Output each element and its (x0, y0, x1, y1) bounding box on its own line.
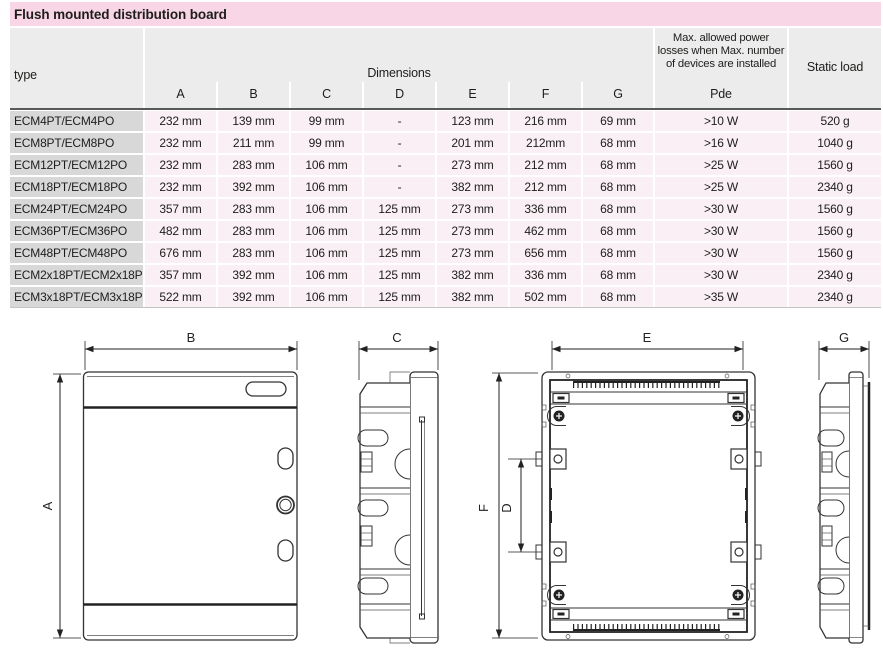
cell-dim-c: 106 mm (291, 243, 362, 263)
cell-dim-g: 68 mm (583, 133, 653, 153)
col-header-type: type (14, 68, 37, 82)
fixing-hole (731, 542, 761, 562)
cell-dim-f: 216 mm (510, 111, 581, 131)
cell-dim-d: - (364, 177, 435, 197)
cell-type: ECM3x18PT/ECM3x18PO (10, 287, 143, 307)
col-header-power-losses: Max. allowed power losses when Max. numb… (655, 32, 787, 71)
cell-dim-c: 106 mm (291, 221, 362, 241)
cell-dim-c: 106 mm (291, 199, 362, 219)
cell-dim-e: 201 mm (437, 133, 508, 153)
dim-f-label: F (476, 504, 491, 512)
cell-static: 520 g (789, 111, 881, 131)
box-profile (360, 383, 410, 638)
hinge-slot-top (278, 448, 293, 469)
box-profile (820, 383, 849, 638)
table-body: ECM4PT/ECM4PO 232 mm 139 mm 99 mm - 123 … (10, 111, 881, 307)
cell-dim-g: 68 mm (583, 177, 653, 197)
cell-dim-f: 212 mm (510, 177, 581, 197)
cell-dim-b: 392 mm (218, 177, 289, 197)
col-header-dim-d: D (364, 87, 435, 101)
cell-dim-b: 283 mm (218, 199, 289, 219)
col-header-dim-g: G (583, 87, 653, 101)
dim-c-label: C (392, 330, 401, 345)
cell-dim-c: 106 mm (291, 177, 362, 197)
cell-static: 2340 g (789, 287, 881, 307)
cell-dim-e: 382 mm (437, 177, 508, 197)
cell-pde: >30 W (655, 221, 787, 241)
cell-dim-g: 69 mm (583, 111, 653, 131)
col-header-static-load: Static load (789, 60, 881, 74)
side-view-c-drawing: C (330, 328, 455, 650)
cell-dim-f: 462 mm (510, 221, 581, 241)
cell-dim-e: 382 mm (437, 265, 508, 285)
cell-type: ECM24PT/ECM24PO (10, 199, 143, 219)
cell-dim-g: 68 mm (583, 287, 653, 307)
cell-dim-g: 68 mm (583, 155, 653, 175)
cell-dim-b: 283 mm (218, 155, 289, 175)
cell-dim-e: 273 mm (437, 155, 508, 175)
cell-dim-f: 212mm (510, 133, 581, 153)
cell-pde: >16 W (655, 133, 787, 153)
cell-dim-e: 123 mm (437, 111, 508, 131)
cell-type: ECM48PT/ECM48PO (10, 243, 143, 263)
enclosure-outline (542, 372, 755, 640)
cell-dim-a: 232 mm (145, 177, 216, 197)
cell-dim-f: 212 mm (510, 155, 581, 175)
cell-dim-g: 68 mm (583, 221, 653, 241)
cell-dim-d: - (364, 111, 435, 131)
col-header-dim-e: E (437, 87, 508, 101)
cell-dim-b: 392 mm (218, 265, 289, 285)
col-header-dim-c: C (291, 87, 362, 101)
fixing-hole (731, 449, 761, 469)
cell-type: ECM4PT/ECM4PO (10, 111, 143, 131)
cell-type: ECM8PT/ECM8PO (10, 133, 143, 153)
side-view-g-drawing: G (805, 328, 883, 650)
cell-dim-d: 125 mm (364, 287, 435, 307)
hinge-slot-bottom (278, 540, 293, 561)
cell-dim-d: - (364, 155, 435, 175)
cell-dim-a: 232 mm (145, 111, 216, 131)
cell-dim-d: 125 mm (364, 243, 435, 263)
cell-dim-g: 68 mm (583, 199, 653, 219)
cell-dim-c: 106 mm (291, 287, 362, 307)
cell-dim-e: 382 mm (437, 287, 508, 307)
rear-view-drawing: E F D (480, 328, 775, 650)
dim-g-label: G (839, 330, 849, 345)
handle-slot (246, 382, 286, 396)
cell-type: ECM18PT/ECM18PO (10, 177, 143, 197)
cell-static: 1560 g (789, 243, 881, 263)
cell-pde: >30 W (655, 199, 787, 219)
cell-static: 2340 g (789, 177, 881, 197)
dim-e-label: E (643, 330, 652, 345)
cell-dim-a: 357 mm (145, 265, 216, 285)
cell-dim-b: 283 mm (218, 221, 289, 241)
cell-pde: >10 W (655, 111, 787, 131)
cell-dim-e: 273 mm (437, 221, 508, 241)
enclosure-outline (84, 372, 298, 640)
cell-pde: >25 W (655, 155, 787, 175)
col-header-dim-a: A (145, 87, 216, 101)
cell-dim-f: 502 mm (510, 287, 581, 307)
cell-dim-a: 482 mm (145, 221, 216, 241)
cell-dim-d: 125 mm (364, 265, 435, 285)
cell-static: 1560 g (789, 155, 881, 175)
cell-dim-c: 106 mm (291, 265, 362, 285)
cell-pde: >30 W (655, 243, 787, 263)
cell-dim-d: 125 mm (364, 199, 435, 219)
dim-d-label: D (499, 503, 514, 512)
dim-a-label: A (40, 501, 55, 510)
cell-dim-g: 68 mm (583, 243, 653, 263)
cell-dim-g: 68 mm (583, 265, 653, 285)
col-header-pde: Pde (655, 87, 787, 101)
table-bottom-rule (10, 307, 881, 308)
cell-static: 1560 g (789, 221, 881, 241)
cell-static: 1560 g (789, 199, 881, 219)
col-header-dim-b: B (218, 87, 289, 101)
datasheet-page: { "title": "Flush mounted distribution b… (0, 0, 883, 655)
cell-dim-c: 106 mm (291, 155, 362, 175)
front-view-drawing: B A (40, 328, 315, 650)
page-title: Flush mounted distribution board (10, 7, 227, 22)
cell-dim-b: 392 mm (218, 287, 289, 307)
cell-dim-b: 283 mm (218, 243, 289, 263)
cell-type: ECM12PT/ECM12PO (10, 155, 143, 175)
cell-dim-f: 656 mm (510, 243, 581, 263)
cell-dim-f: 336 mm (510, 265, 581, 285)
cell-dim-e: 273 mm (437, 199, 508, 219)
cell-dim-b: 139 mm (218, 111, 289, 131)
door-panel (410, 372, 438, 643)
frame-flange (849, 372, 863, 643)
cell-dim-a: 357 mm (145, 199, 216, 219)
cell-type: ECM36PT/ECM36PO (10, 221, 143, 241)
col-header-dimensions: Dimensions (145, 66, 653, 80)
title-bar: Flush mounted distribution board (10, 2, 881, 26)
table-header: type Dimensions A B C D E F G Max. allow… (10, 28, 881, 108)
header-rule (10, 108, 881, 110)
cell-pde: >35 W (655, 287, 787, 307)
cell-dim-b: 211 mm (218, 133, 289, 153)
cell-dim-c: 99 mm (291, 111, 362, 131)
cell-dim-a: 676 mm (145, 243, 216, 263)
cell-pde: >30 W (655, 265, 787, 285)
cell-pde: >25 W (655, 177, 787, 197)
cell-static: 2340 g (789, 265, 881, 285)
cell-dim-a: 522 mm (145, 287, 216, 307)
cell-dim-a: 232 mm (145, 133, 216, 153)
cell-dim-c: 99 mm (291, 133, 362, 153)
cell-dim-d: - (364, 133, 435, 153)
col-header-dim-f: F (510, 87, 581, 101)
cell-dim-e: 273 mm (437, 243, 508, 263)
cell-dim-d: 125 mm (364, 221, 435, 241)
cell-static: 1040 g (789, 133, 881, 153)
cell-type: ECM2x18PT/ECM2x18PO (10, 265, 143, 285)
cell-dim-a: 232 mm (145, 155, 216, 175)
dim-b-label: B (187, 330, 196, 345)
cell-dim-f: 336 mm (510, 199, 581, 219)
